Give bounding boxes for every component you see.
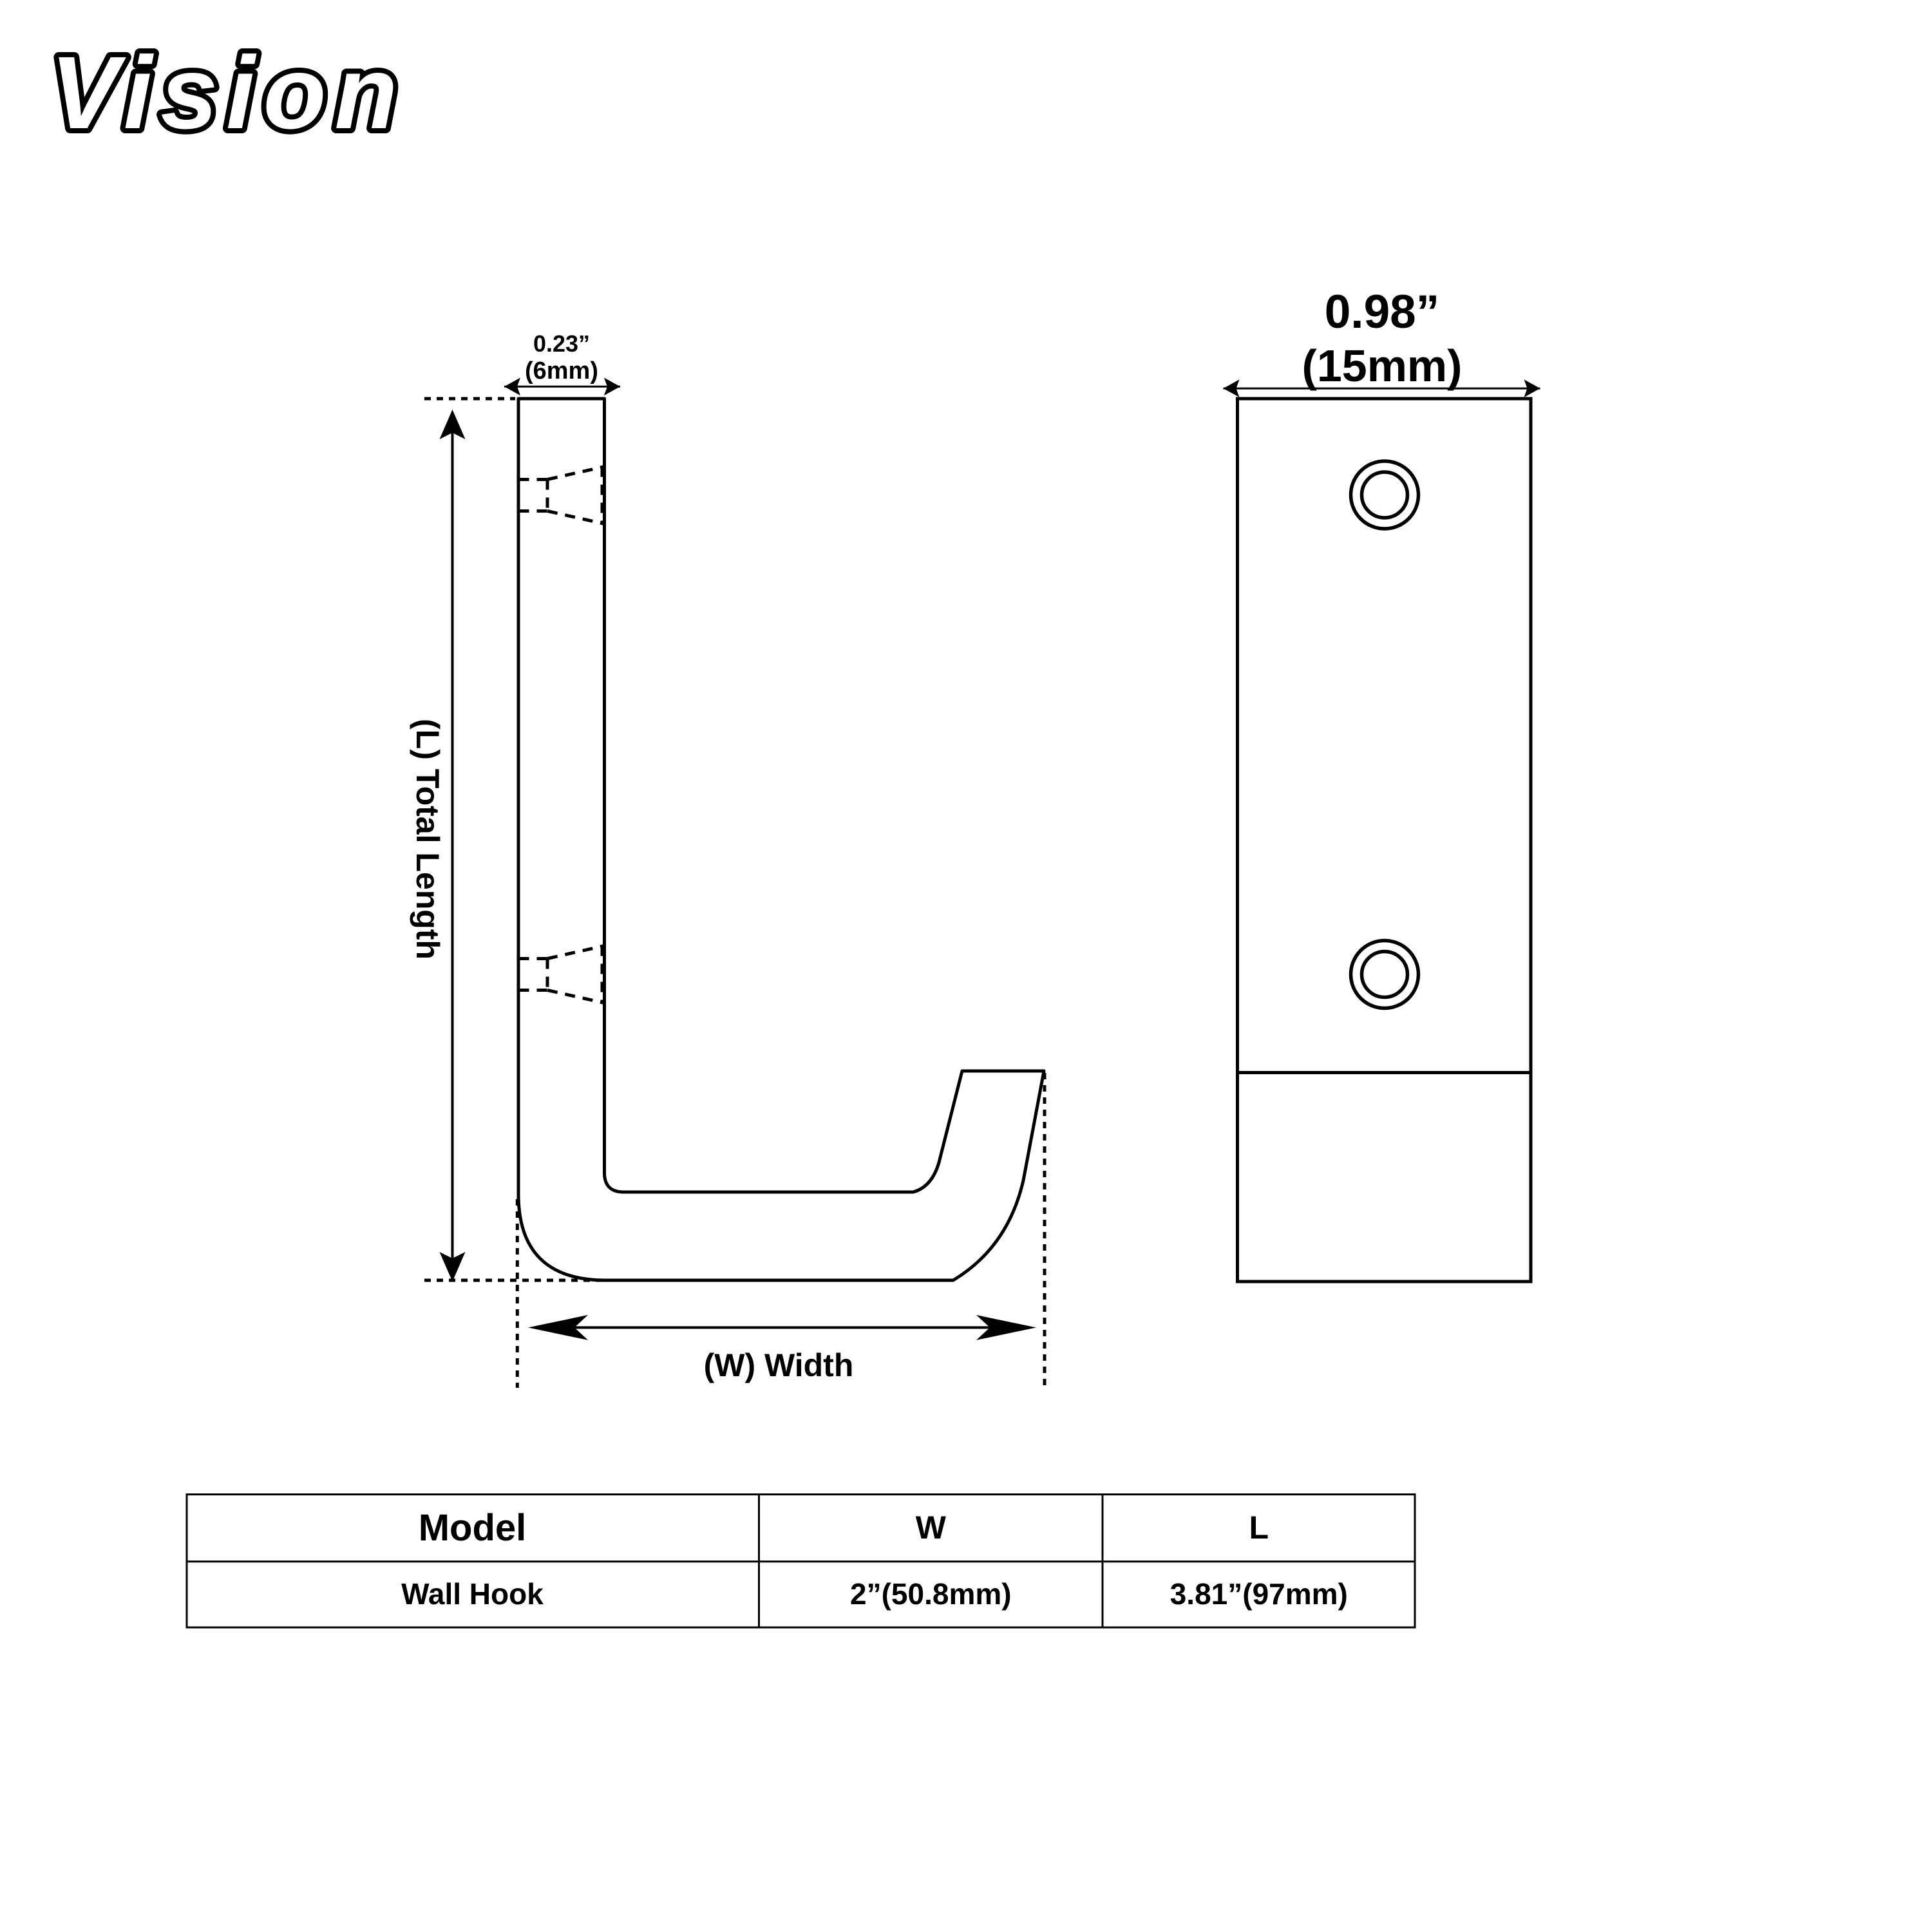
svg-text:W: W xyxy=(916,1510,947,1546)
svg-text:(6mm): (6mm) xyxy=(525,357,598,384)
svg-text:Wall Hook: Wall Hook xyxy=(401,1577,544,1611)
svg-text:3.81”(97mm): 3.81”(97mm) xyxy=(1170,1577,1348,1611)
svg-text:Vision: Vision xyxy=(50,35,406,150)
svg-text:0.98”: 0.98” xyxy=(1325,286,1440,338)
svg-text:(L) Total Length: (L) Total Length xyxy=(410,719,446,960)
svg-text:(15mm): (15mm) xyxy=(1302,341,1463,391)
svg-text:(W) Width: (W) Width xyxy=(704,1347,854,1383)
svg-text:0.23”: 0.23” xyxy=(533,330,590,357)
svg-text:L: L xyxy=(1249,1510,1269,1546)
svg-text:Model: Model xyxy=(419,1507,527,1549)
svg-text:2”(50.8mm): 2”(50.8mm) xyxy=(850,1577,1012,1611)
